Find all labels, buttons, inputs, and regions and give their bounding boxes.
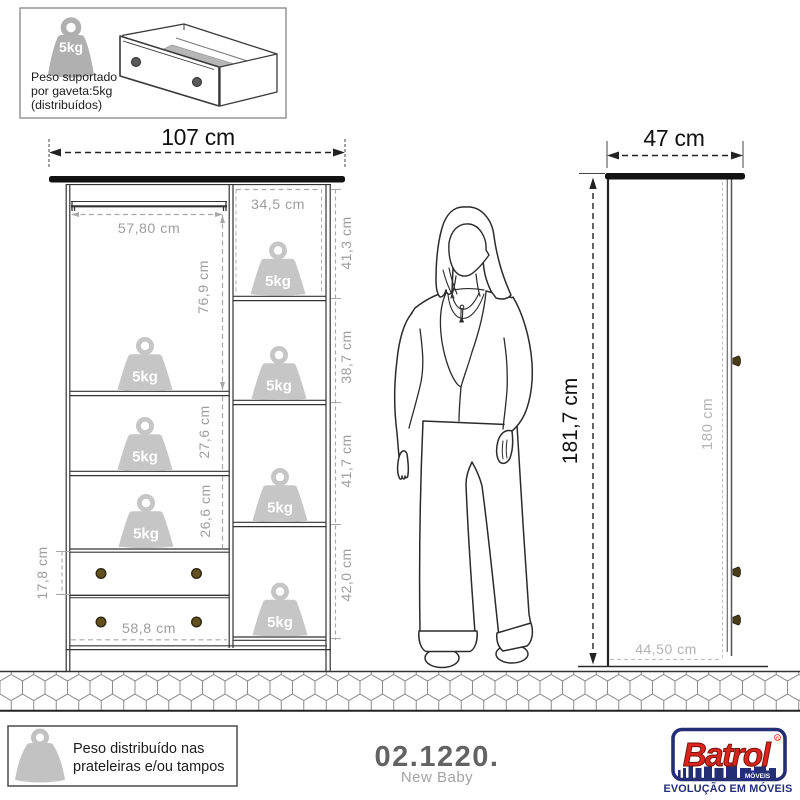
svg-text:47 cm: 47 cm — [643, 125, 704, 151]
svg-text:New Baby: New Baby — [401, 769, 473, 786]
svg-text:181,7 cm: 181,7 cm — [559, 378, 582, 464]
svg-text:26,6 cm: 26,6 cm — [197, 484, 213, 537]
svg-text:R: R — [776, 736, 779, 741]
svg-text:por gaveta:5kg: por gaveta:5kg — [31, 84, 113, 98]
svg-text:42,0 cm: 42,0 cm — [338, 548, 354, 601]
svg-text:5kg: 5kg — [267, 614, 293, 631]
svg-text:76,9 cm: 76,9 cm — [196, 260, 212, 314]
svg-text:34,5 cm: 34,5 cm — [251, 197, 305, 213]
svg-text:107 cm: 107 cm — [161, 124, 235, 150]
svg-text:17,8 cm: 17,8 cm — [34, 546, 50, 599]
svg-text:5kg: 5kg — [267, 499, 293, 516]
svg-text:Peso suportado: Peso suportado — [31, 70, 117, 84]
svg-text:38,7 cm: 38,7 cm — [338, 330, 354, 383]
svg-text:41,3 cm: 41,3 cm — [338, 216, 354, 269]
svg-text:(distribuídos): (distribuídos) — [31, 98, 102, 112]
svg-text:57,80 cm: 57,80 cm — [118, 221, 180, 237]
svg-text:5kg: 5kg — [132, 368, 158, 385]
svg-text:27,6 cm: 27,6 cm — [196, 405, 212, 458]
svg-text:prateleiras e/ou tampos: prateleiras e/ou tampos — [73, 759, 225, 775]
svg-text:5kg: 5kg — [266, 377, 292, 394]
svg-text:Batrol: Batrol — [683, 736, 772, 773]
svg-text:5kg: 5kg — [133, 525, 159, 542]
svg-text:180 cm: 180 cm — [699, 398, 716, 450]
svg-text:41,7 cm: 41,7 cm — [338, 434, 354, 487]
svg-text:Peso distribuído nas: Peso distribuído nas — [73, 741, 204, 757]
svg-text:44,50 cm: 44,50 cm — [635, 641, 697, 657]
svg-text:EVOLUÇÃO EM MÓVEIS: EVOLUÇÃO EM MÓVEIS — [664, 782, 793, 795]
svg-text:5kg: 5kg — [132, 448, 158, 465]
svg-text:58,8 cm: 58,8 cm — [122, 621, 176, 637]
svg-text:5kg: 5kg — [59, 39, 83, 55]
svg-text:5kg: 5kg — [265, 273, 291, 290]
